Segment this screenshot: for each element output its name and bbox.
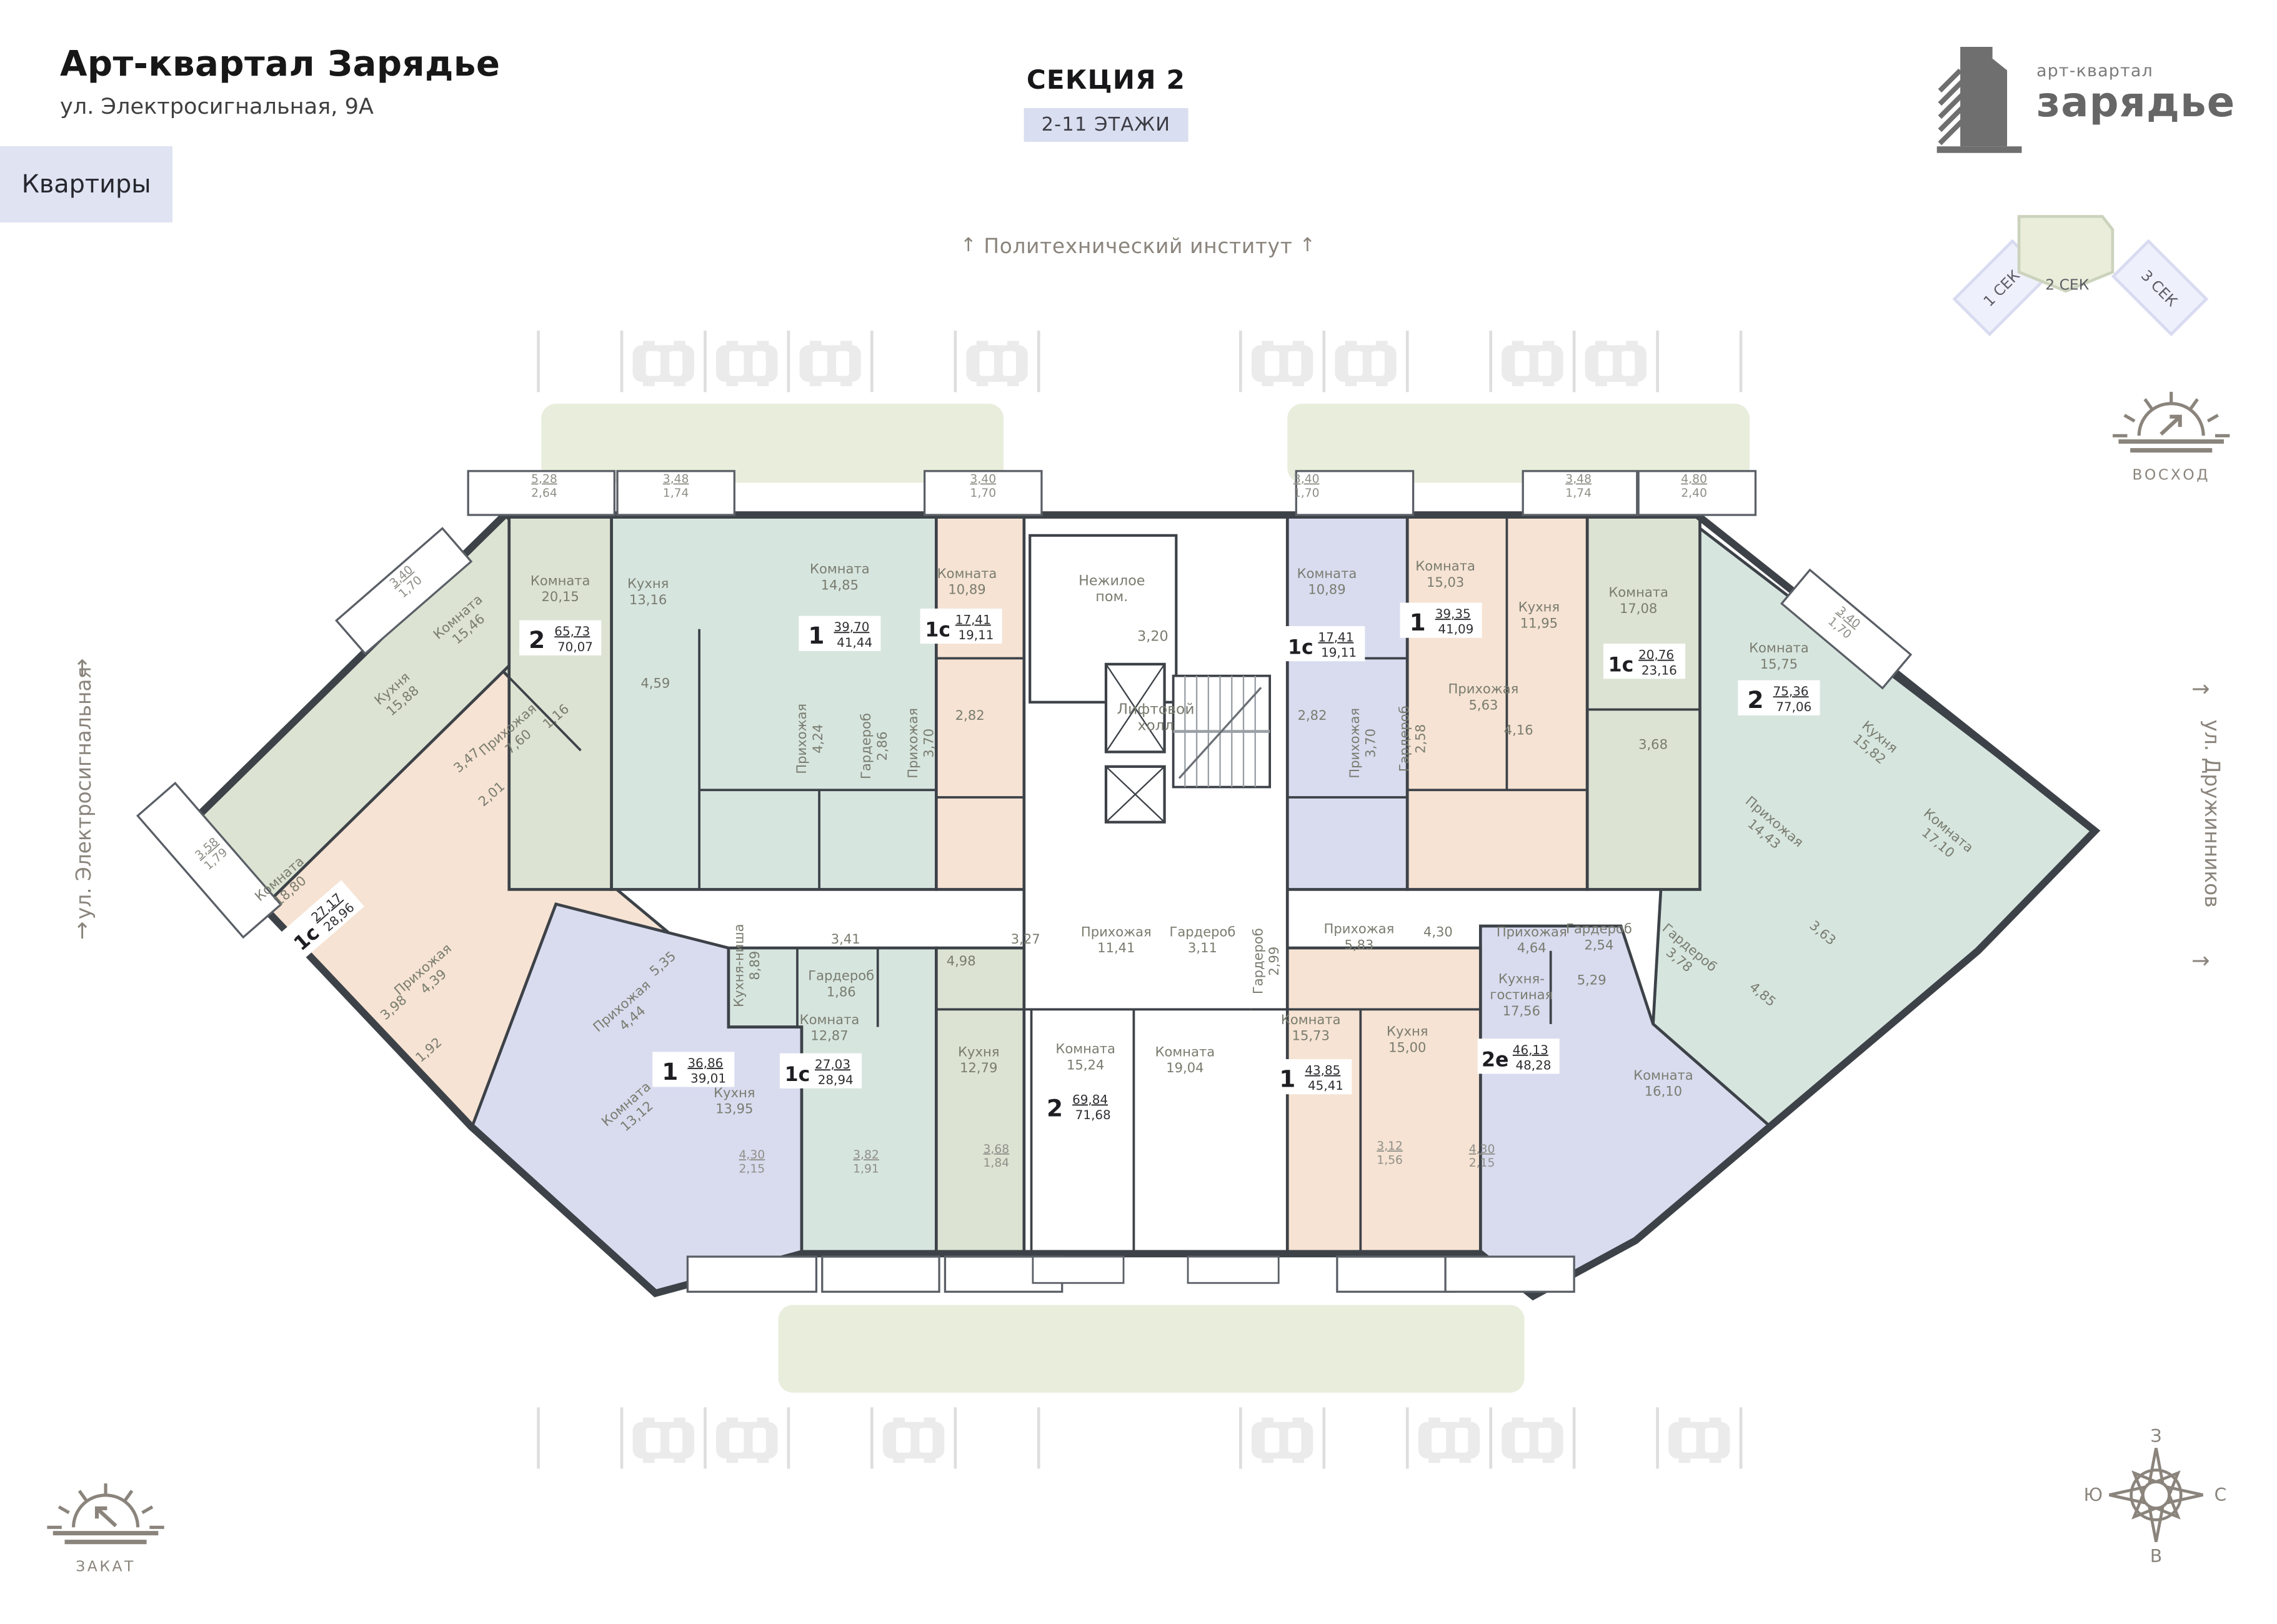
balcony	[822, 1257, 939, 1292]
balcony-label: 3,481,74	[663, 473, 689, 500]
balcony-label: 4,302,15	[739, 1148, 765, 1175]
badge-type: 1	[808, 622, 824, 649]
car-icon	[716, 341, 777, 386]
apartment-badge[interactable]: 1с17,4119,11	[920, 609, 1002, 644]
apartment-badge[interactable]: 2е46,1348,28	[1478, 1039, 1560, 1074]
badge-area-total: 19,11	[1321, 645, 1357, 660]
balcony	[1337, 1257, 1454, 1292]
badge-type: 2е	[1482, 1049, 1508, 1072]
entrance-porch	[1188, 1257, 1278, 1283]
room-label: Кухня13,95	[714, 1085, 755, 1117]
room-label: 2,82	[1298, 707, 1327, 723]
badge-area-total: 39,01	[690, 1071, 726, 1085]
badge-type: 2	[1047, 1094, 1063, 1122]
balcony	[1445, 1257, 1574, 1292]
apartment-badge[interactable]: 136,8639,01	[652, 1052, 734, 1087]
badge-area-living: 17,41	[1318, 630, 1353, 645]
badge-area-total: 45,41	[1308, 1079, 1343, 1093]
badge-area-living: 39,70	[834, 620, 869, 634]
room-label: 4,98	[947, 953, 976, 969]
apartment-badge[interactable]: 275,3677,06	[1738, 680, 1820, 715]
badge-area-living: 46,13	[1513, 1043, 1548, 1057]
entrance-porch	[1033, 1257, 1124, 1283]
car-icon	[1585, 341, 1647, 386]
badge-area-total: 19,11	[958, 628, 994, 642]
badge-area-living: 17,41	[955, 613, 991, 627]
room-label: 2,82	[955, 707, 985, 723]
apartment-1-39,70[interactable]	[612, 515, 937, 889]
staircase	[1173, 676, 1270, 787]
badge-type: 1с	[1288, 637, 1313, 659]
badge-area-living: 20,76	[1638, 648, 1674, 662]
balcony-label: 3,821,91	[853, 1148, 879, 1175]
balcony-label: 5,282,64	[531, 473, 557, 500]
badge-area-total: 23,16	[1642, 663, 1677, 677]
apartment-1c-20,76[interactable]	[1587, 515, 1700, 889]
apartment-badge[interactable]: 143,8545,41	[1270, 1059, 1352, 1094]
badge-type: 1с	[925, 619, 950, 641]
balcony-label: 3,481,74	[1565, 473, 1592, 500]
room-label: Кухня11,95	[1518, 599, 1560, 631]
car-icon	[633, 341, 694, 386]
room-label: 4,16	[1504, 722, 1533, 737]
badge-area-living: 69,84	[1072, 1092, 1108, 1107]
car-icon	[1252, 341, 1313, 386]
room-label: 5,29	[1577, 972, 1607, 988]
badge-type: 2	[1747, 686, 1763, 714]
lawn-strip	[779, 1305, 1525, 1392]
car-icon	[716, 1418, 777, 1463]
room-label: 3,27	[1011, 931, 1040, 947]
car-icon	[883, 1418, 944, 1463]
car-icon	[1335, 341, 1396, 386]
nonres-area: 3,20	[1137, 628, 1168, 644]
floor-plan: Нежилоепом.3,20ЛифтовойхоллКомната20,15К…	[0, 0, 2276, 1624]
badge-type: 1с	[1608, 654, 1634, 677]
badge-type: 1	[1410, 609, 1426, 636]
elevator-shaft	[1106, 767, 1165, 822]
apartment-badge[interactable]: 265,7370,07	[519, 620, 601, 655]
car-icon	[1502, 1418, 1563, 1463]
badge-area-total: 41,44	[837, 635, 872, 650]
badge-area-total: 70,07	[557, 640, 593, 654]
car-icon	[1252, 1418, 1313, 1463]
room-label: 4,30	[1423, 924, 1453, 939]
badge-area-living: 27,03	[815, 1057, 850, 1072]
badge-type: 1с	[785, 1064, 810, 1086]
car-icon	[1502, 341, 1563, 386]
car-icon	[1418, 1418, 1480, 1463]
balcony-label: 4,802,40	[1681, 473, 1707, 500]
balcony-label: 3,681,84	[984, 1143, 1010, 1170]
apartment-badge[interactable]: 1с17,4119,11	[1283, 626, 1365, 661]
badge-area-total: 28,94	[818, 1073, 854, 1087]
apartment-badge[interactable]: 1с20,7623,16	[1603, 644, 1685, 679]
room-label: 3,68	[1638, 737, 1668, 752]
badge-area-total: 48,28	[1515, 1058, 1551, 1072]
balcony-label: 3,121,56	[1377, 1140, 1403, 1167]
badge-area-living: 65,73	[554, 624, 590, 639]
badge-area-total: 71,68	[1075, 1108, 1111, 1122]
page: Арт-квартал Зарядье ул. Электросигнальна…	[0, 0, 2276, 1624]
badge-type: 1	[662, 1058, 678, 1085]
badge-area-living: 39,35	[1435, 607, 1471, 621]
car-icon	[633, 1418, 694, 1463]
balcony-label: 3,401,70	[970, 473, 996, 500]
badge-area-living: 43,85	[1305, 1064, 1340, 1078]
badge-type: 2	[529, 626, 545, 654]
balcony	[687, 1257, 816, 1292]
room-label: Кухня13,16	[627, 575, 669, 607]
balcony-label: 4,302,15	[1469, 1143, 1495, 1170]
apartment-badge[interactable]: 269,8471,68	[1037, 1088, 1119, 1123]
balcony-label: 3,401,70	[1293, 473, 1320, 500]
badge-area-total: 41,09	[1438, 622, 1473, 637]
badge-area-living: 36,86	[687, 1056, 723, 1070]
badge-area-living: 75,36	[1773, 684, 1809, 699]
car-icon	[799, 341, 860, 386]
car-icon	[966, 341, 1027, 386]
badge-type: 1	[1279, 1065, 1295, 1093]
apartment-badge[interactable]: 139,3541,09	[1400, 603, 1482, 638]
apartment-badge[interactable]: 1с27,0328,94	[780, 1054, 862, 1088]
car-icon	[1668, 1418, 1730, 1463]
room-label: Кухня12,79	[958, 1044, 999, 1075]
room-label: Кухня15,00	[1387, 1024, 1428, 1055]
badge-area-total: 77,06	[1776, 700, 1811, 714]
room-label: 4,59	[640, 675, 670, 690]
room-label: 3,41	[831, 931, 860, 947]
apartment-badge[interactable]: 139,7041,44	[799, 616, 880, 651]
